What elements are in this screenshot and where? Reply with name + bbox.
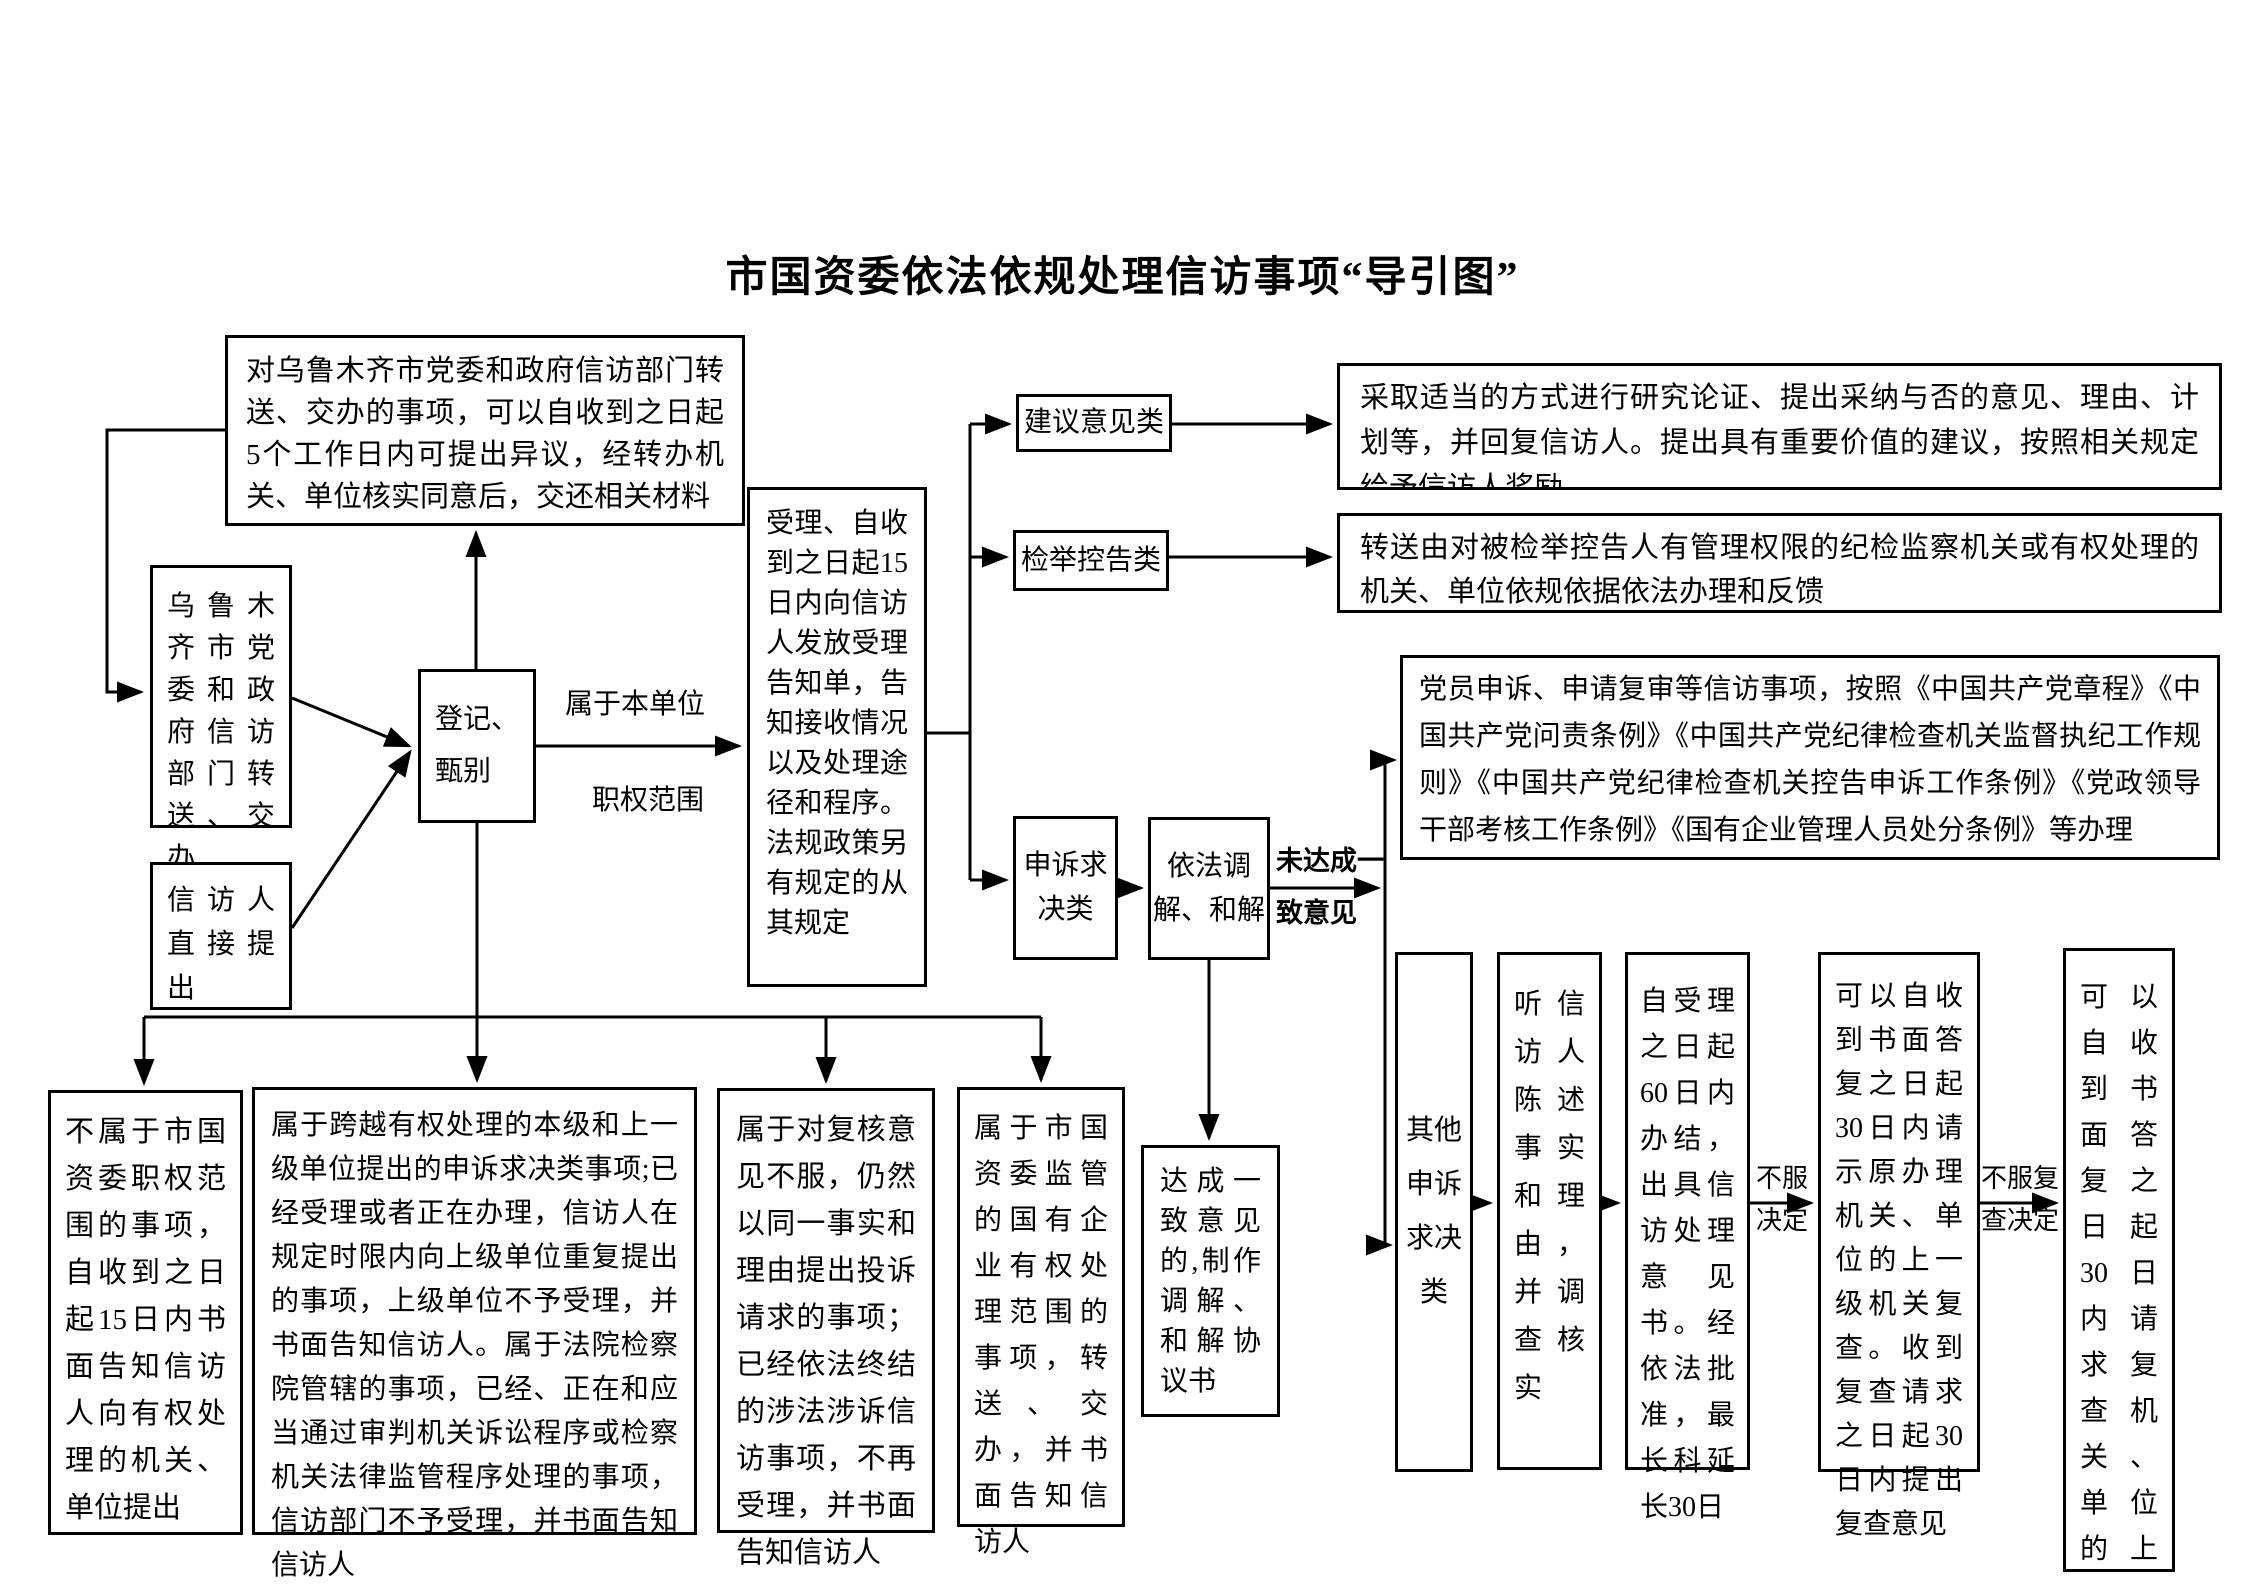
- page-title: 市国资委依法依规处理信访事项“导引图”: [0, 243, 2245, 304]
- box-source-direct-petition: 信访人直接提出: [150, 862, 292, 1010]
- connector-source-direct-to-register: [292, 752, 410, 928]
- box-final-review-request: 可以自收到书面答复之日起30日内请求复查机关、单位的上一级: [2063, 948, 2175, 1572]
- box-appeal-category: 申诉求决类: [1013, 816, 1118, 960]
- box-cross-level-items: 属于跨越有权处理的本级和上一级单位提出的申诉求决类事项;已经受理或者正在办理，信…: [252, 1087, 697, 1535]
- label-no-agreement-reached: 未达成一致意见: [1276, 835, 1390, 939]
- box-acceptance-notice: 受理、自收到之日起15日内向信访人发放受理告知单，告知接收情况以及处理途径和程序…: [747, 487, 927, 987]
- connector-source-gov-to-register: [292, 698, 409, 746]
- box-review-objection-refuse: 属于对复核意见不服，仍然以同一事实和理由提出投诉请求的事项；已经依法终结的涉法涉…: [717, 1088, 935, 1533]
- box-party-member-appeal-rules: 党员申诉、申请复审等信访事项，按照《中国共产党章程》《中国共产党问责条例》《中国…: [1400, 655, 2220, 860]
- box-hear-statement-investigate: 听信访人陈述事实和理由，并调查核实: [1497, 952, 1602, 1470]
- box-not-in-jurisdiction: 不属于市国资委职权范围的事项，自收到之日起15日内书面告知信访人向有权处理的机关…: [48, 1090, 243, 1535]
- box-other-appeal-category: 其他申诉求决类: [1395, 952, 1473, 1472]
- box-agreement-reached: 达成一致意见的,制作调解、和解协议书: [1141, 1145, 1280, 1417]
- box-accusation-handling: 转送由对被检举控告人有管理权限的纪检监察机关或有权处理的机关、单位依规依据依法办…: [1337, 513, 2222, 613]
- box-source-government-transfer: 乌鲁木齐市党委和政府信访部门转送、交办: [150, 565, 292, 828]
- flowchart-canvas: 市国资委依法依规处理信访事项“导引图” 对乌鲁木齐市党委和政府信访部门转送、交办…: [0, 0, 2245, 1587]
- connector-accept-branch-rail: [927, 424, 970, 880]
- box-handle-within-60-days: 自受理之日起60日内办结，出具信访处理意见书。经依法批准，最长科延长30日: [1625, 952, 1750, 1470]
- label-within-own-scope-line1: 属于本单位: [565, 682, 705, 722]
- label-refuse-decision: 不服决定: [1756, 1158, 1814, 1242]
- label-within-own-scope-line2: 职权范围: [592, 778, 704, 818]
- box-accusation-category: 检举控告类: [1013, 530, 1169, 591]
- box-lawful-mediation: 依法调解、和解: [1148, 817, 1270, 960]
- box-objection-procedure: 对乌鲁木齐市党委和政府信访部门转送、交办的事项，可以自收到之日起5个工作日内可提…: [225, 335, 745, 526]
- box-suggestion-handling: 采取适当的方式进行研究论证、提出采纳与否的意见、理由、计划等，并回复信访人。提出…: [1337, 363, 2222, 490]
- box-recheck-request: 可以自收到书面答复之日起30日内请示原办理机关、单位的上一级机关复查。收到复查请…: [1818, 952, 1980, 1472]
- box-suggestion-category: 建议意见类: [1016, 394, 1172, 452]
- box-register-screen: 登记、甄别: [418, 669, 536, 823]
- box-soe-scope-transfer: 属于市国资委监管的国有企业有权处理范围的事项，转送、交办，并书面告知信访人: [957, 1087, 1125, 1527]
- label-refuse-recheck-decision: 不服复查决定: [1981, 1158, 2065, 1242]
